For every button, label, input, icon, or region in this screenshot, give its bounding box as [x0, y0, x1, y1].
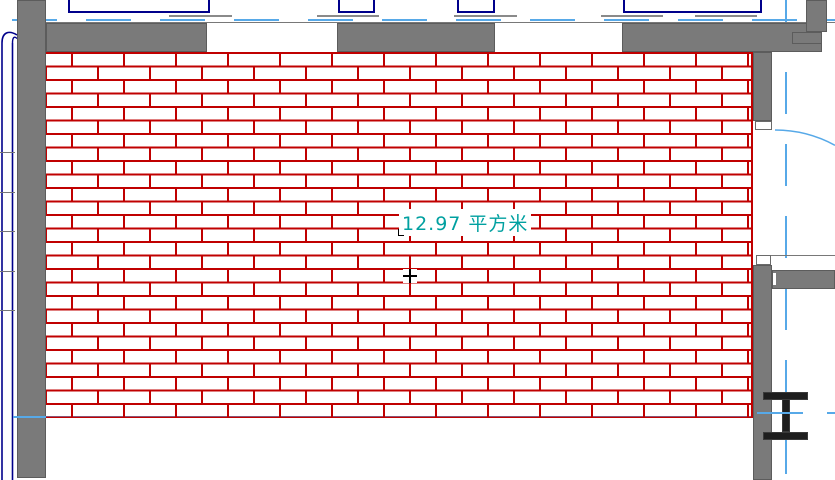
i-beam-bottom-flange [763, 432, 808, 440]
label-corner-mark [398, 229, 404, 237]
pipe-tick [0, 310, 15, 311]
pipe-tick [0, 192, 15, 193]
room-area-label[interactable]: 12.97 平方米 [399, 209, 531, 236]
wall-segment-top-left[interactable] [46, 23, 207, 52]
wall-segment-branch[interactable] [772, 270, 835, 289]
door-jamb-lower [756, 255, 771, 265]
window-symbol[interactable] [457, 0, 495, 13]
sill-line [601, 15, 663, 17]
i-beam-web [782, 399, 790, 432]
cad-viewport[interactable]: 12.97 平方米 [0, 0, 835, 480]
cross-vertical [409, 269, 410, 283]
pipe-riser-symbol[interactable] [0, 26, 22, 480]
sill-line [169, 15, 232, 17]
window-symbol[interactable] [68, 0, 210, 13]
room-reference-cross[interactable] [403, 269, 417, 283]
pipe-tick [0, 231, 15, 232]
sill-line [317, 15, 379, 17]
corner-column-step[interactable] [792, 32, 822, 44]
window-symbol[interactable] [623, 0, 762, 13]
branch-wall-notch [773, 273, 776, 285]
pipe-tick [0, 152, 15, 153]
wall-segment-top-mid[interactable] [337, 23, 495, 52]
pipe-tick [0, 271, 15, 272]
corner-column[interactable] [806, 0, 827, 32]
wall-segment-right-lower[interactable] [753, 265, 772, 480]
sill-line [454, 15, 517, 17]
grid-centerline-top [12, 19, 835, 21]
wall-segment-right-upper[interactable] [753, 52, 772, 121]
door-swing-arc[interactable] [770, 125, 835, 150]
window-symbol[interactable] [338, 0, 375, 13]
wall-face-line-right [770, 255, 835, 256]
beam-centerline [757, 412, 835, 414]
steel-column-symbol[interactable] [763, 392, 808, 440]
sill-line [695, 15, 757, 17]
